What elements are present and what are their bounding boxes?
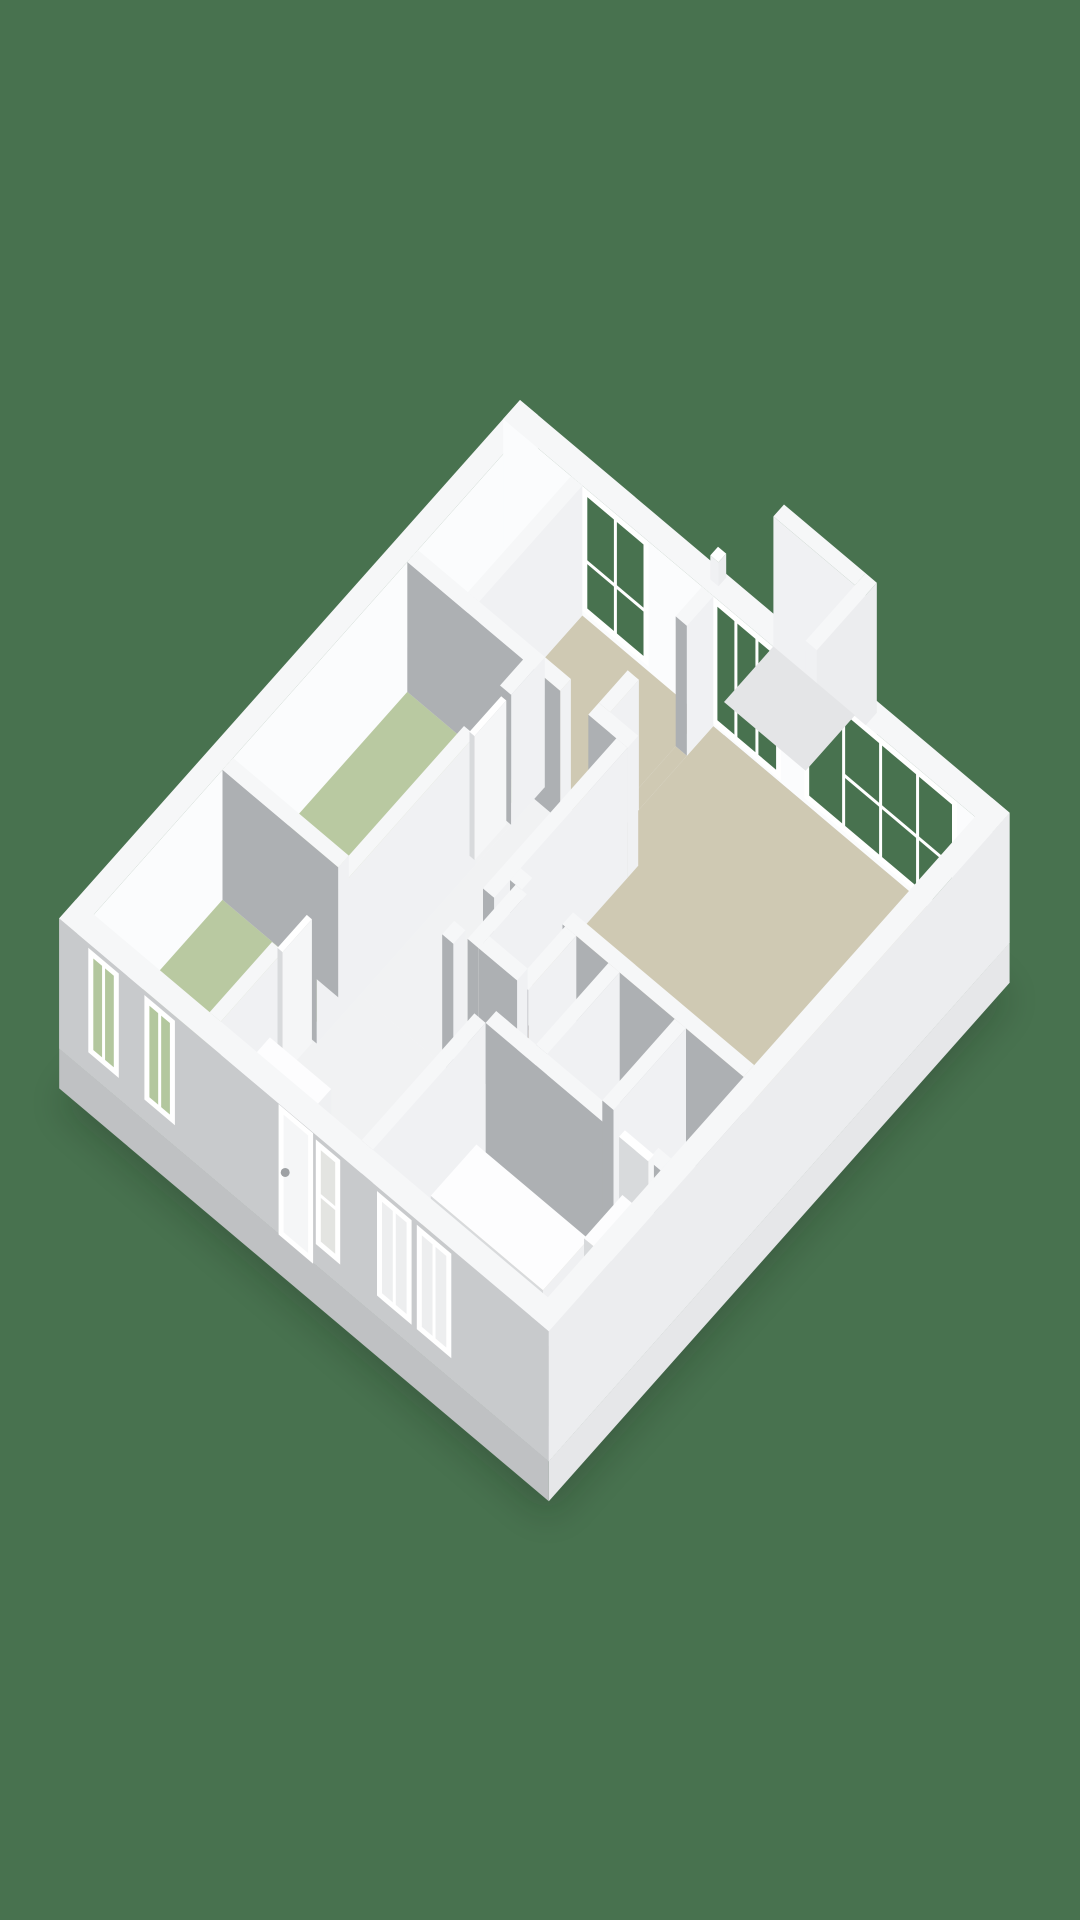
window-bedroom2-west [91,953,117,1073]
window-bathroom-east [419,1230,449,1353]
wall-bedroom-living-a [676,587,714,756]
window-hall-sidelight [318,1145,337,1259]
floorplan-svg [0,0,1080,1920]
window-bedroom2-east [147,1000,173,1120]
door-handle [281,1168,290,1177]
window-bathroom-west [380,1196,410,1319]
floorplan-3d-stage [0,0,1080,1920]
front-door [281,1109,311,1258]
